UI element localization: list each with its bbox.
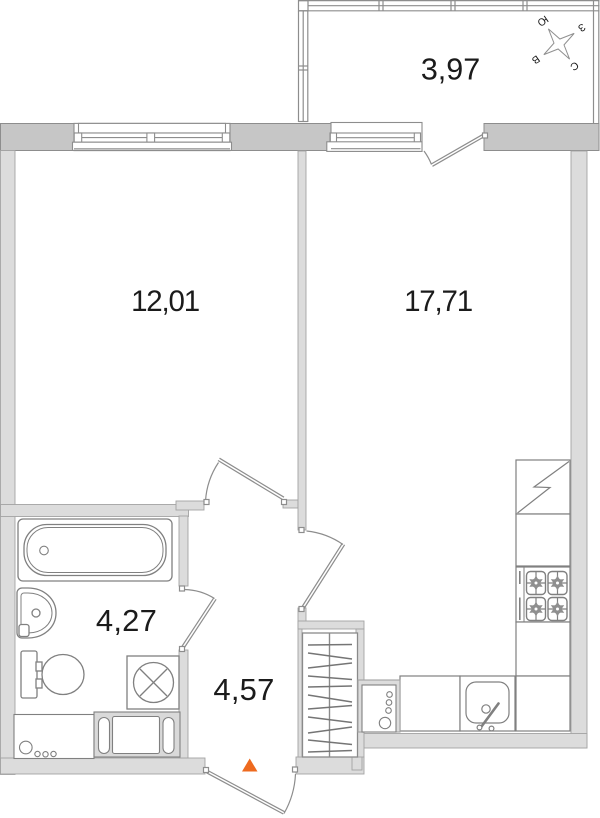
svg-text:3,97: 3,97: [421, 53, 480, 87]
svg-text:12,01: 12,01: [131, 285, 199, 318]
svg-text:4,57: 4,57: [213, 672, 274, 707]
svg-text:4,27: 4,27: [96, 603, 157, 638]
svg-text:17,71: 17,71: [404, 285, 472, 318]
